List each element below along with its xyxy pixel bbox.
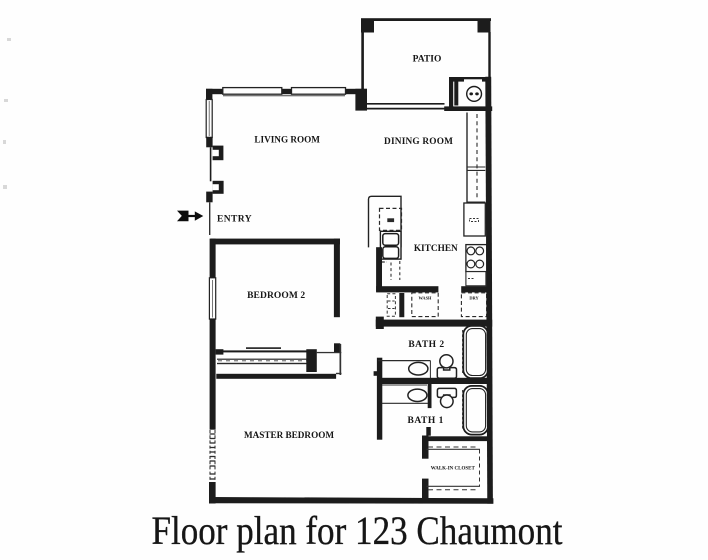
svg-text:LIVING ROOM: LIVING ROOM xyxy=(254,134,320,144)
svg-text:WALK-IN CLOSET: WALK-IN CLOSET xyxy=(431,467,476,472)
svg-text:ENTRY: ENTRY xyxy=(217,214,252,224)
svg-text:DRY: DRY xyxy=(469,296,479,301)
svg-text:WASH: WASH xyxy=(419,296,433,301)
svg-text:PATIO: PATIO xyxy=(413,55,442,65)
svg-text:BATH 2: BATH 2 xyxy=(408,340,444,350)
svg-text:MASTER BEDROOM: MASTER BEDROOM xyxy=(244,430,334,440)
svg-text:KITCHEN: KITCHEN xyxy=(414,244,458,254)
svg-text:Floor plan for 123 Chaumont: Floor plan for 123 Chaumont xyxy=(152,508,563,553)
svg-text:BEDROOM 2: BEDROOM 2 xyxy=(247,291,305,301)
svg-text:BATH 1: BATH 1 xyxy=(408,416,444,426)
svg-text:DINING ROOM: DINING ROOM xyxy=(384,137,453,147)
